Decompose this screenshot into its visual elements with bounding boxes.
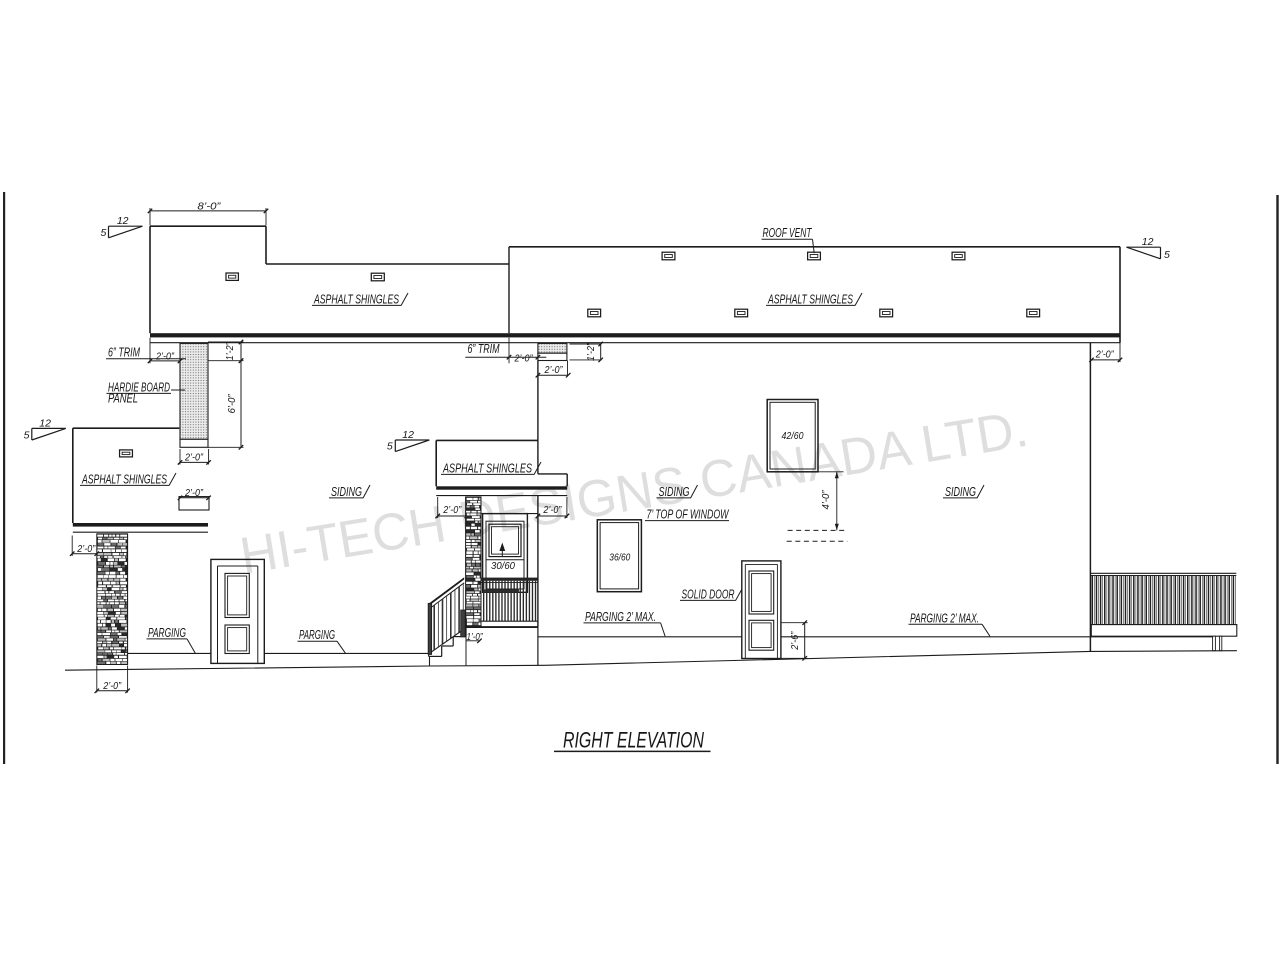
svg-text:12: 12 [39,417,51,429]
svg-text:6’-0”: 6’-0” [226,394,238,413]
svg-text:7’ TOP OF WINDOW: 7’ TOP OF WINDOW [647,506,730,521]
svg-text:5: 5 [1164,249,1170,261]
svg-text:ASPHALT SHINGLES: ASPHALT SHINGLES [442,460,532,475]
svg-text:12: 12 [402,429,414,441]
svg-text:2’-6”: 2’-6” [789,631,801,650]
svg-text:1’-2”: 1’-2” [224,342,236,360]
svg-text:5: 5 [24,429,30,441]
svg-text:PARGING 2’ MAX.: PARGING 2’ MAX. [910,610,979,625]
svg-text:PARGING: PARGING [148,625,186,640]
svg-text:5: 5 [100,227,106,239]
svg-text:SOLID DOOR: SOLID DOOR [682,586,735,601]
svg-text:42/60: 42/60 [782,430,804,442]
svg-text:ASPHALT SHINGLES: ASPHALT SHINGLES [767,291,853,306]
svg-text:12: 12 [1142,236,1154,248]
svg-text:2’-0”: 2’-0” [442,504,461,516]
svg-text:5: 5 [387,441,393,453]
svg-text:1’-2”: 1’-2” [585,343,597,361]
svg-text:2’-0”: 2’-0” [102,680,121,692]
svg-text:30/60: 30/60 [491,560,515,572]
svg-text:2’-0”: 2’-0” [1095,348,1114,360]
svg-text:PANEL: PANEL [108,391,138,406]
svg-text:SIDING: SIDING [331,484,362,499]
svg-text:2’-0”: 2’-0” [543,504,562,516]
svg-text:PARGING: PARGING [299,627,335,642]
svg-text:RIGHT ELEVATION: RIGHT ELEVATION [563,727,704,752]
svg-text:ROOF VENT: ROOF VENT [763,225,813,240]
svg-text:1’-0”: 1’-0” [467,631,483,643]
svg-text:SIDING: SIDING [659,484,690,499]
svg-text:6” TRIM: 6” TRIM [108,344,140,359]
svg-text:2’-0”: 2’-0” [155,350,174,362]
svg-text:6” TRIM: 6” TRIM [468,341,500,356]
svg-text:8’-0”: 8’-0” [197,200,221,212]
svg-text:2’-0”: 2’-0” [544,364,563,376]
svg-text:2’-0”: 2’-0” [184,487,203,499]
svg-text:12: 12 [117,215,129,227]
svg-text:SIDING: SIDING [945,484,976,499]
svg-text:PARGING 2’ MAX.: PARGING 2’ MAX. [585,609,656,624]
svg-text:ASPHALT SHINGLES: ASPHALT SHINGLES [81,471,167,486]
svg-text:4’-0”: 4’-0” [820,490,832,509]
svg-text:ASPHALT SHINGLES: ASPHALT SHINGLES [313,291,399,306]
svg-text:36/60: 36/60 [609,552,630,564]
svg-text:2’-0”: 2’-0” [514,352,533,364]
svg-text:2’-0”: 2’-0” [184,452,203,464]
svg-text:2’-0”: 2’-0” [76,543,95,555]
